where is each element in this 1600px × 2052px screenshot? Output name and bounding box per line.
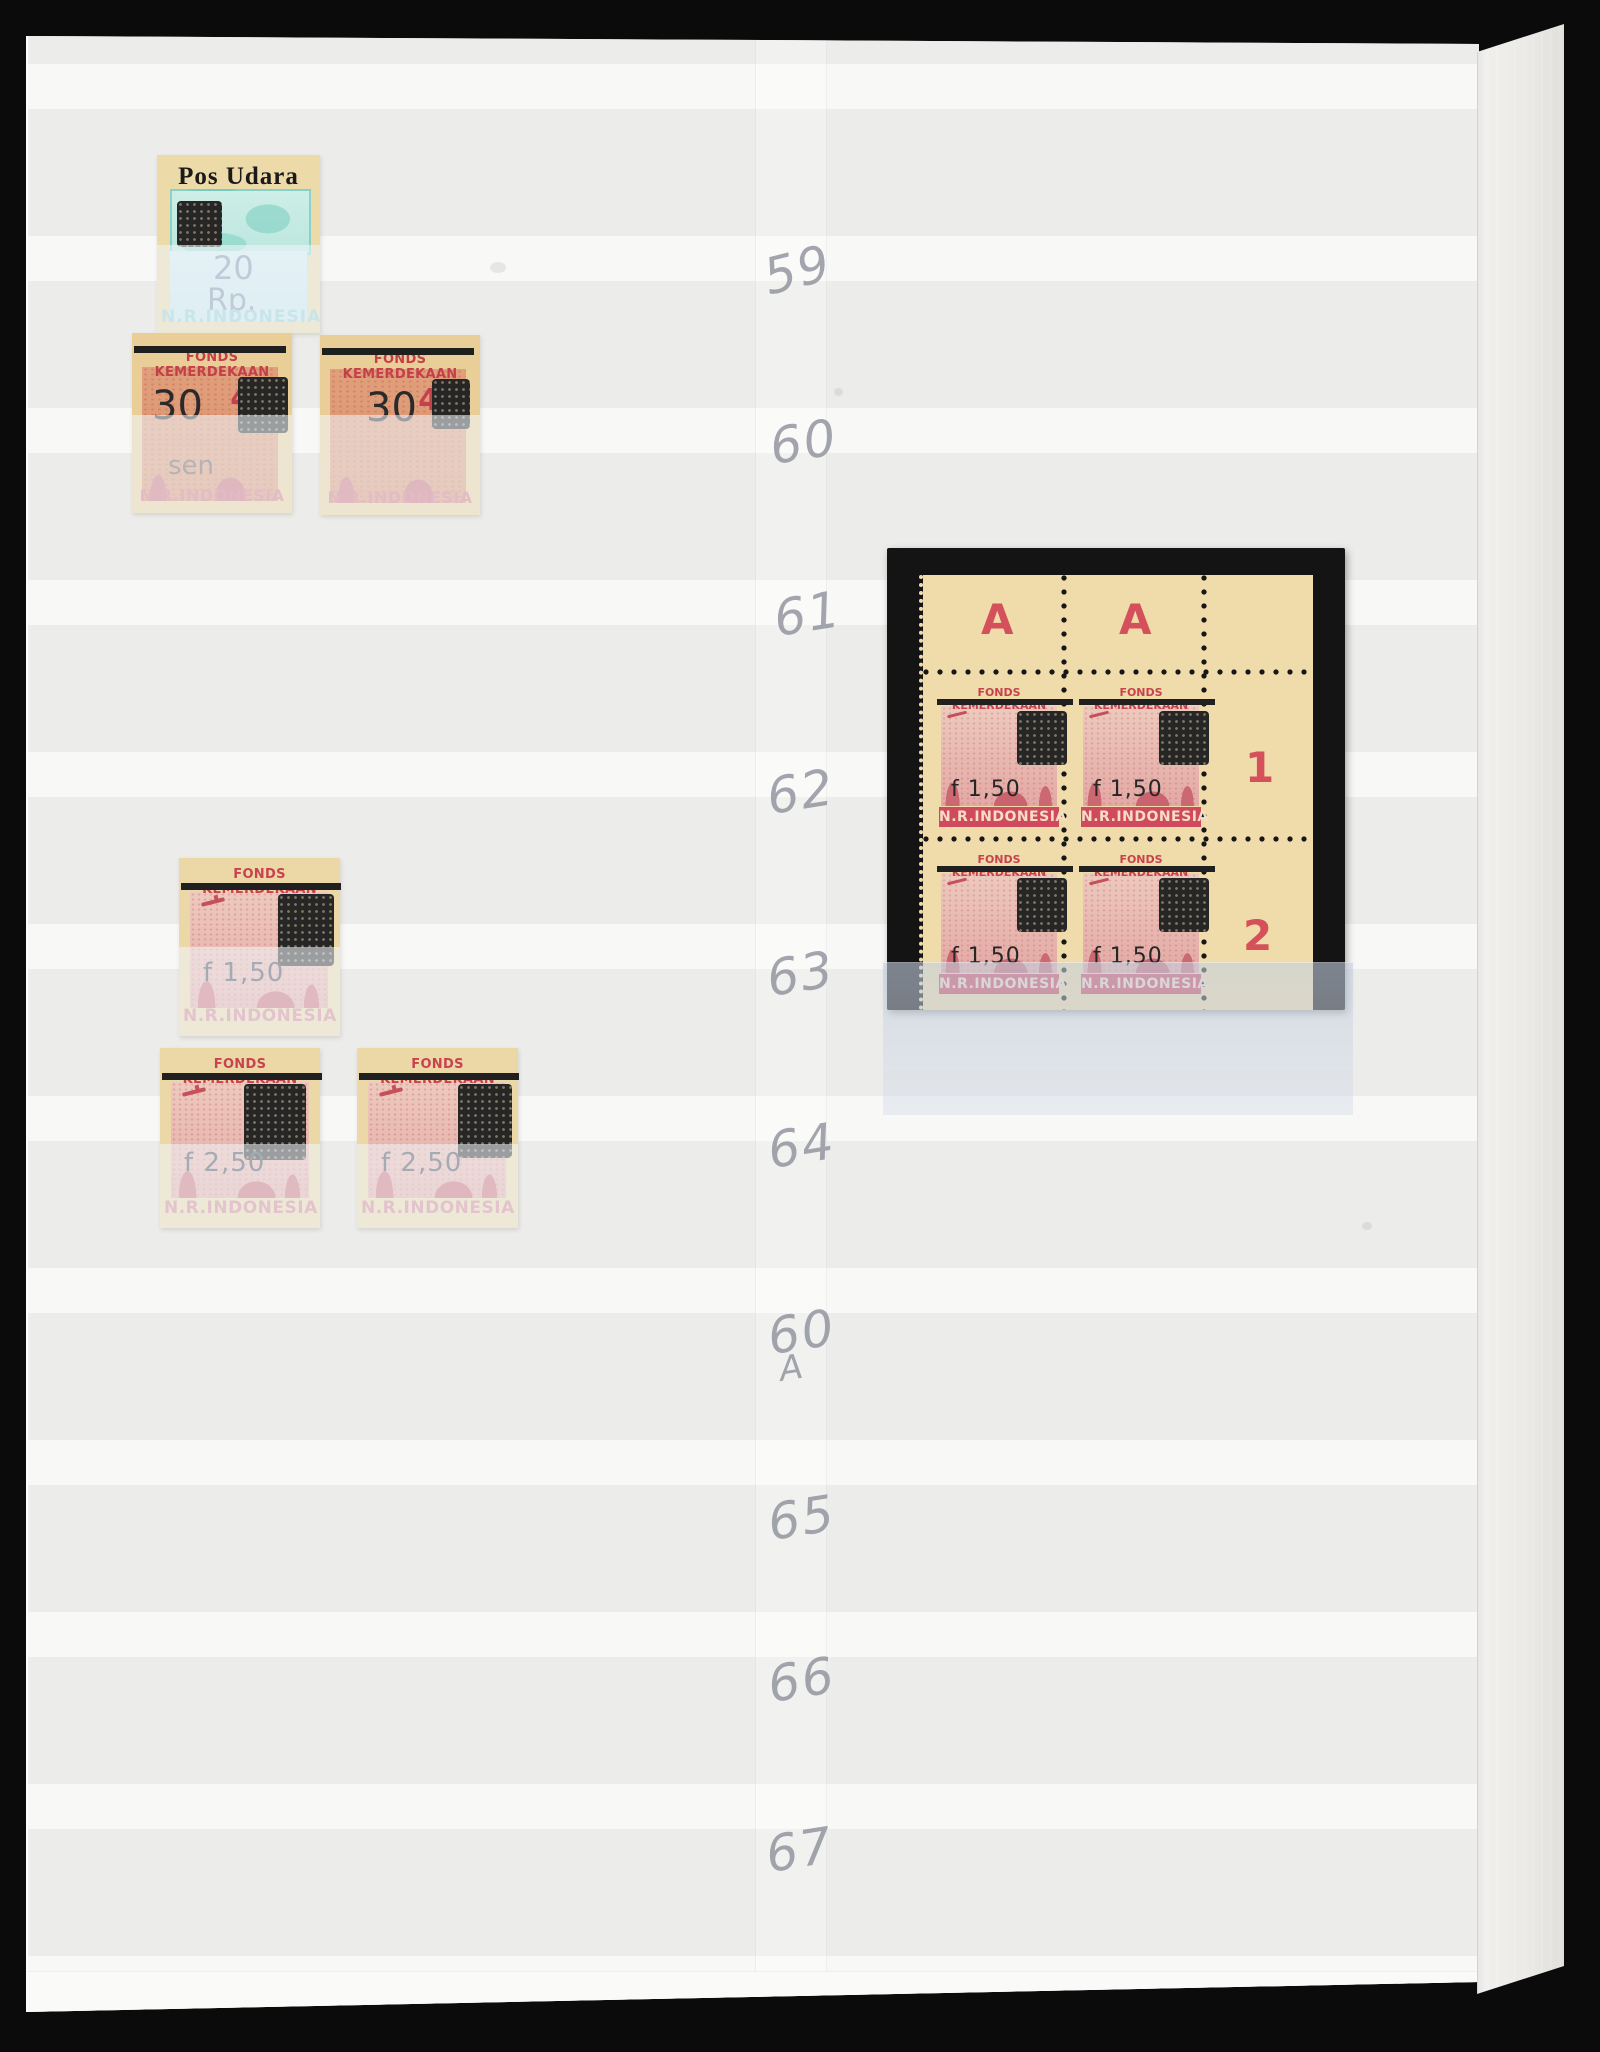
sheet-corner-block: A A 1 2 FONDS KEMERDEKAAN 40 f 1,50 N.R.… <box>919 575 1313 1010</box>
plate-letter-a2: A <box>1119 595 1152 644</box>
plate-number-2: 2 <box>1243 911 1272 960</box>
page-center-seam <box>755 36 827 2012</box>
dust-speck <box>834 388 843 396</box>
stamp-fonds-f250-right: FONDS KEMERDEKAAN f 2,50 N.R.INDONESIA <box>357 1048 518 1228</box>
fonds-header: FONDS KEMERDEKAAN <box>324 352 476 382</box>
obliteration-overprint <box>177 201 222 247</box>
fonds-header: FONDS KEMERDEKAAN <box>136 350 288 380</box>
surcharge-value: f 1,50 <box>1093 777 1163 802</box>
black-mount-card: A A 1 2 FONDS KEMERDEKAAN 40 f 1,50 N.R.… <box>887 548 1345 1010</box>
stamp-fonds-f250-left: FONDS KEMERDEKAAN f 2,50 N.R.INDONESIA <box>160 1048 320 1228</box>
fonds-header: FONDS KEMERDEKAAN <box>361 1057 514 1087</box>
obliteration-overprint <box>1159 878 1209 932</box>
glassine-strip-overlay <box>179 947 340 1036</box>
glassine-strip-over-card <box>883 962 1353 1115</box>
pencil-number-60: 60 <box>767 415 841 470</box>
pencil-number-61: 61 <box>771 587 845 642</box>
stamp-fonds-30sen-right: FONDS KEMERDEKAAN 40 30 N.R.INDONESIA <box>320 335 480 515</box>
black-bar-overprint <box>162 1073 322 1080</box>
fonds-header: FONDS KEMERDEKAAN <box>183 867 336 897</box>
surcharge-value: f 1,50 <box>951 777 1021 802</box>
plate-number-1: 1 <box>1245 743 1274 792</box>
black-bar-overprint <box>134 346 286 353</box>
pencil-number-65: 65 <box>765 1491 839 1546</box>
pencil-number-66: 66 <box>765 1653 839 1708</box>
glassine-strip-overlay <box>320 415 480 515</box>
pencil-number-63: 63 <box>764 947 838 1002</box>
perforation-row <box>923 669 1313 675</box>
dust-speck <box>490 262 506 273</box>
block-stamp-r1c1: FONDS KEMERDEKAAN 40 f 1,50 N.R.INDONESI… <box>935 683 1063 829</box>
pencil-number-59: 59 <box>760 240 837 300</box>
glassine-strip-overlay <box>132 415 292 513</box>
black-bar-overprint <box>1079 866 1215 872</box>
black-bar-overprint <box>359 1073 519 1080</box>
obliteration-overprint <box>1017 711 1067 765</box>
pencil-number-67: 67 <box>763 1823 837 1878</box>
page-bottom-edge <box>28 1972 1479 2012</box>
black-bar-overprint <box>181 883 341 890</box>
black-bar-overprint <box>322 348 474 355</box>
black-bar-overprint <box>1079 699 1215 705</box>
country-inscription: N.R.INDONESIA <box>939 807 1059 827</box>
black-bar-overprint <box>937 699 1073 705</box>
glassine-strip-overlay <box>157 245 320 333</box>
perforation-row <box>923 836 1313 842</box>
album-photo: 59 60 61 62 63 64 60 A 65 66 67 Pos Udar… <box>0 0 1600 2052</box>
glassine-strip-overlay <box>357 1144 518 1228</box>
dust-speck <box>1362 1222 1372 1230</box>
country-inscription: N.R.INDONESIA <box>1081 807 1201 827</box>
black-bar-overprint <box>937 866 1073 872</box>
obliteration-overprint <box>1159 711 1209 765</box>
stamp-fonds-30sen-left: FONDS KEMERDEKAAN 40 30 sen N.R.INDONESI… <box>132 333 292 513</box>
stamp-fonds-f150-single: FONDS KEMERDEKAAN f 1,50 N.R.INDONESIA <box>179 858 340 1036</box>
pos-udara-overprint: Pos Udara <box>161 163 316 191</box>
pencil-number-62: 62 <box>764 765 838 820</box>
stockbook-page: 59 60 61 62 63 64 60 A 65 66 67 Pos Udar… <box>26 36 1479 2012</box>
pencil-number-64: 64 <box>765 1119 839 1174</box>
fonds-header: FONDS KEMERDEKAAN <box>164 1057 316 1087</box>
glassine-strip-overlay <box>160 1144 320 1228</box>
obliteration-overprint <box>1017 878 1067 932</box>
stamp-pos-udara-20rp: Pos Udara 20 Rp. N.R.INDONESIA <box>157 155 320 333</box>
plate-letter-a1: A <box>981 595 1014 644</box>
pencil-number-60a: 60 A <box>765 1305 843 1386</box>
glassine-interleaf-edge <box>1477 0 1564 2052</box>
block-stamp-r1c2: FONDS KEMERDEKAAN 40 f 1,50 N.R.INDONESI… <box>1077 683 1205 829</box>
